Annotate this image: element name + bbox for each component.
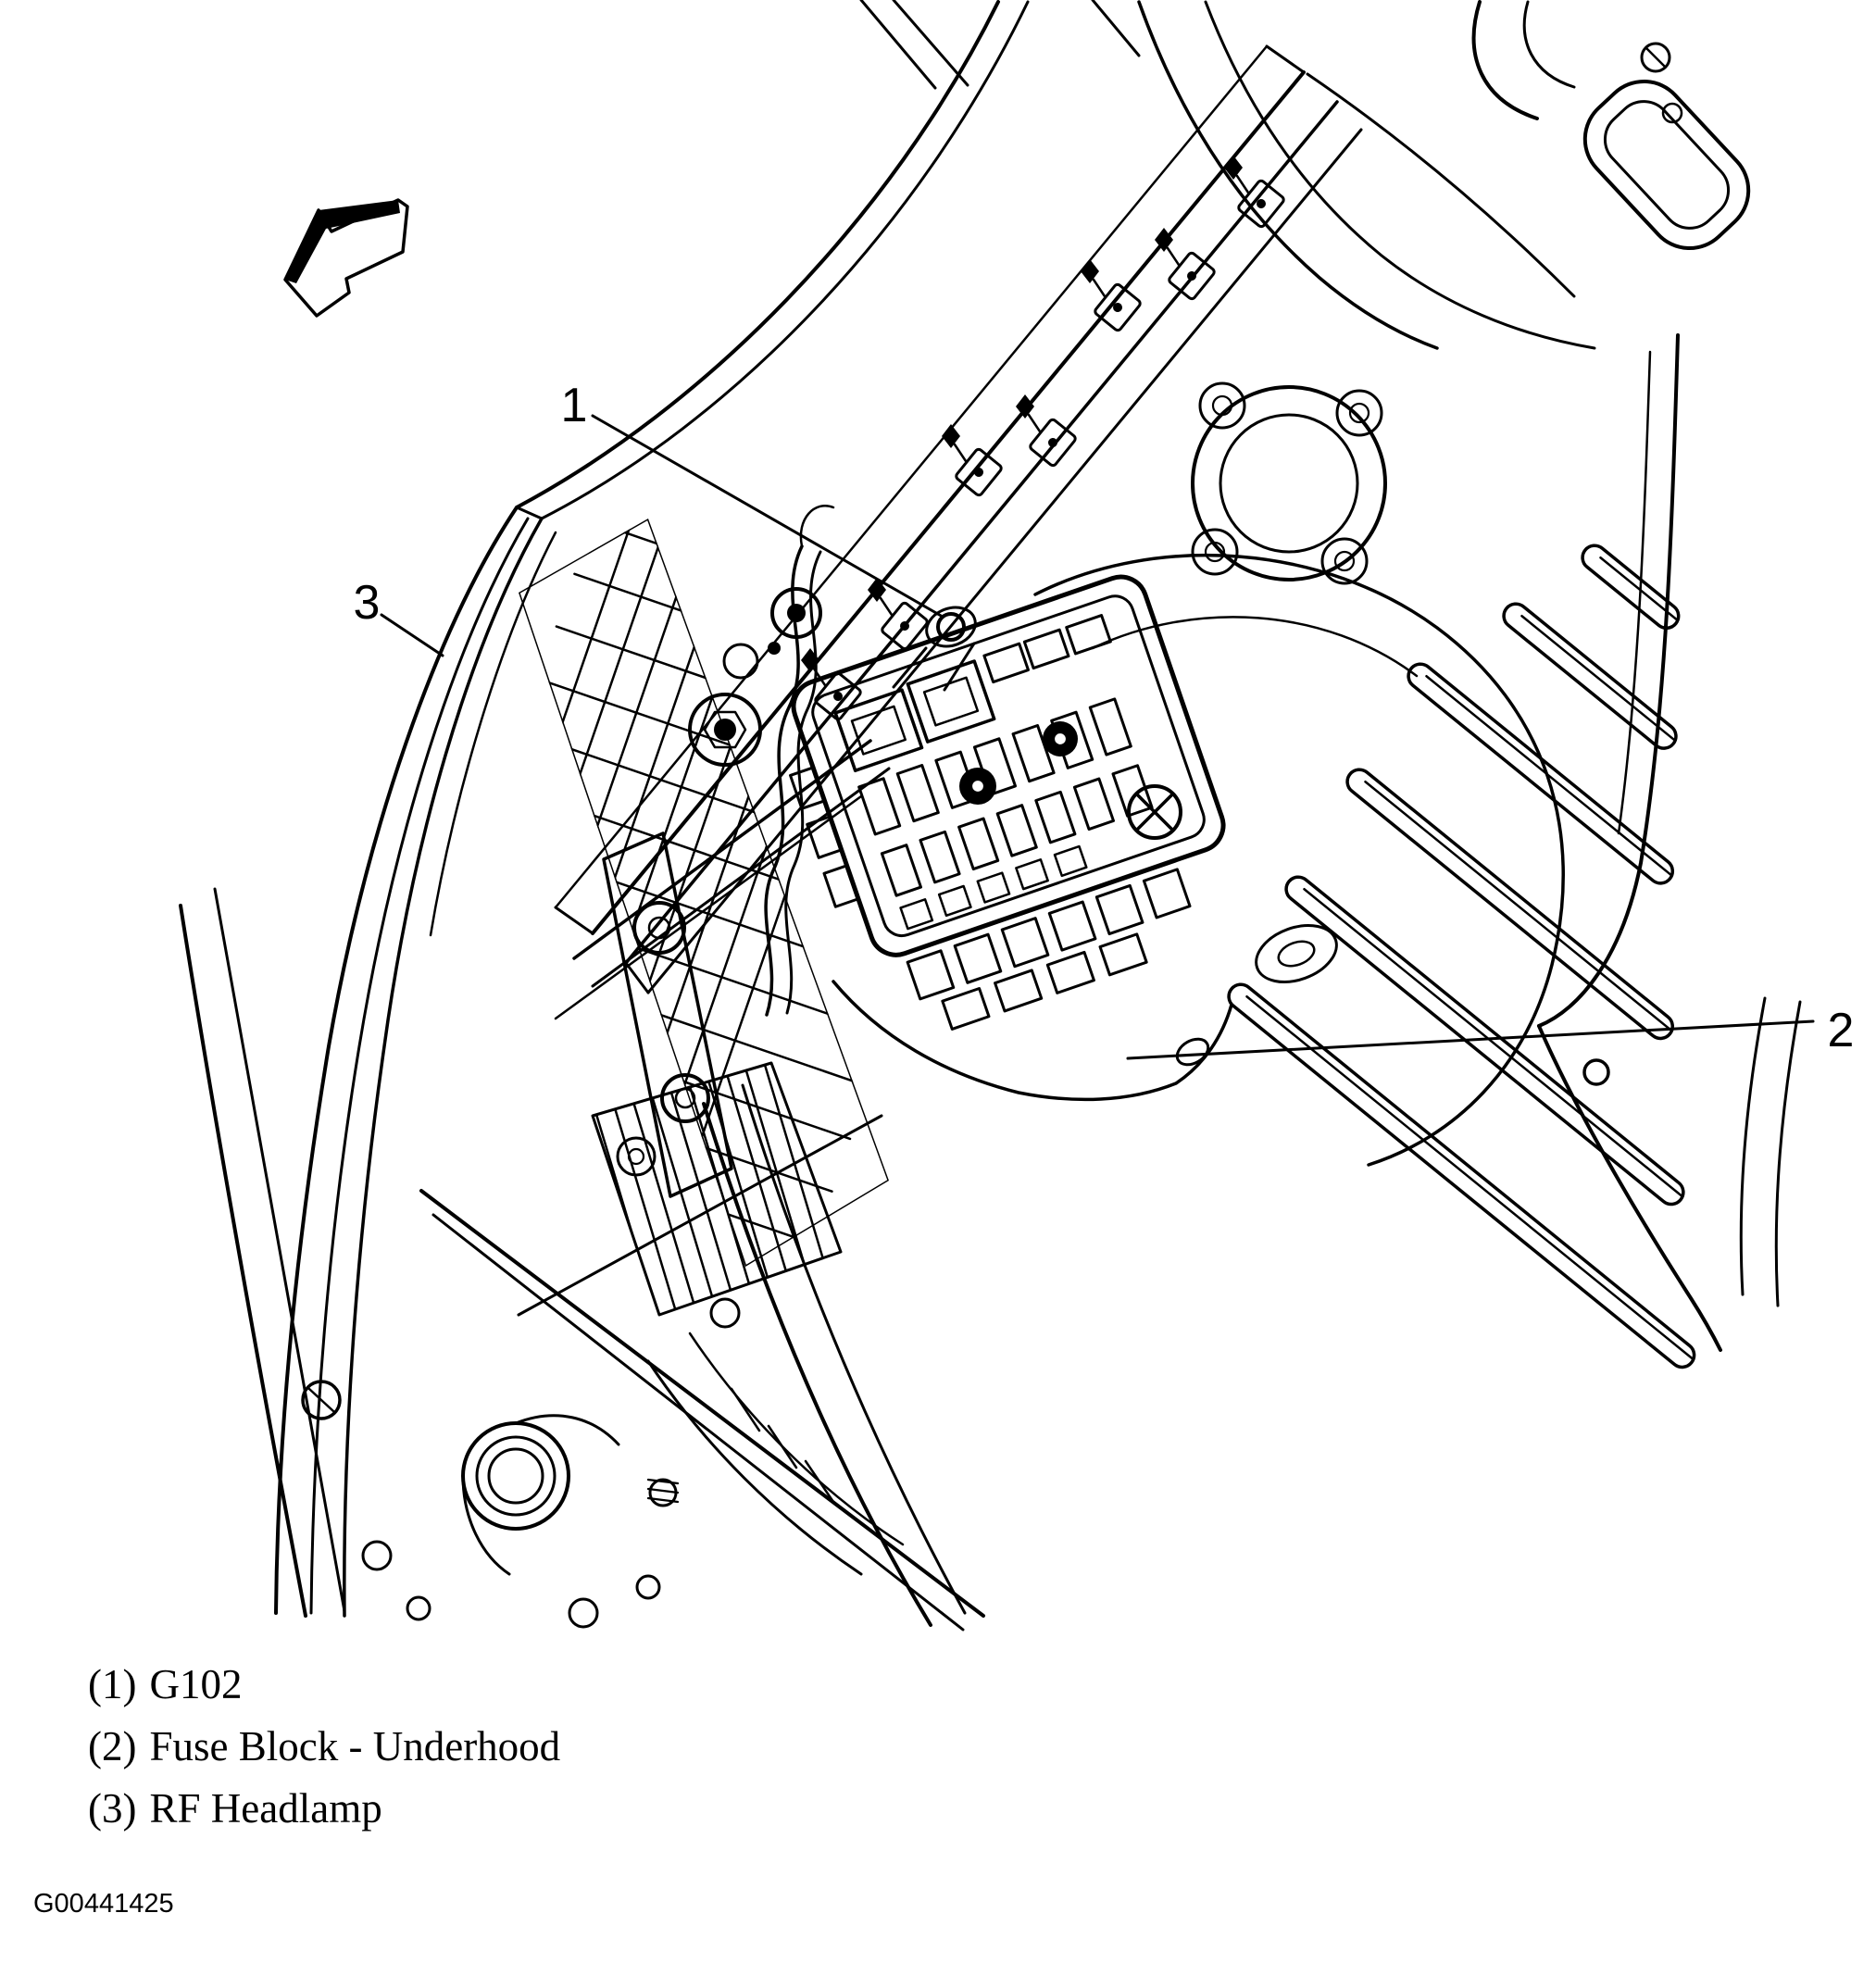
legend-item-2: (2)Fuse Block - Underhood xyxy=(88,1716,560,1778)
figure-canvas: 1 2 3 (1)G102 (2)Fuse Block - Underhood … xyxy=(0,0,1876,1988)
fuse-block-underhood xyxy=(764,569,1344,1099)
callout-3: 3 xyxy=(354,576,381,630)
support-bracket xyxy=(556,589,889,1196)
figure-code: G00441425 xyxy=(33,1889,174,1919)
radiator-support xyxy=(421,1085,983,1630)
legend-marker: (3) xyxy=(88,1778,136,1840)
legend-marker: (1) xyxy=(88,1654,136,1716)
callout-2: 2 xyxy=(1828,1004,1855,1057)
cowl-channel xyxy=(556,46,1361,993)
hatched-panel xyxy=(556,1046,863,1324)
gasket-opening xyxy=(1193,383,1385,583)
legend-marker: (2) xyxy=(88,1716,136,1778)
dash-floor-panel xyxy=(1035,2,1800,1350)
grille-mesh xyxy=(357,417,1049,1349)
legend-item-1: (1)G102 xyxy=(88,1654,560,1716)
frame-opening xyxy=(1568,64,1766,266)
floor-ribs xyxy=(1224,541,1699,1372)
filler-neck xyxy=(303,1382,678,1627)
legend-label: G102 xyxy=(149,1661,242,1707)
legend: (1)G102 (2)Fuse Block - Underhood (3)RF … xyxy=(88,1654,560,1840)
legend-label: Fuse Block - Underhood xyxy=(149,1723,560,1769)
legend-item-3: (3)RF Headlamp xyxy=(88,1778,560,1840)
legend-label: RF Headlamp xyxy=(149,1785,381,1832)
view-direction-arrow-icon xyxy=(285,200,407,316)
callout-1: 1 xyxy=(561,379,588,432)
